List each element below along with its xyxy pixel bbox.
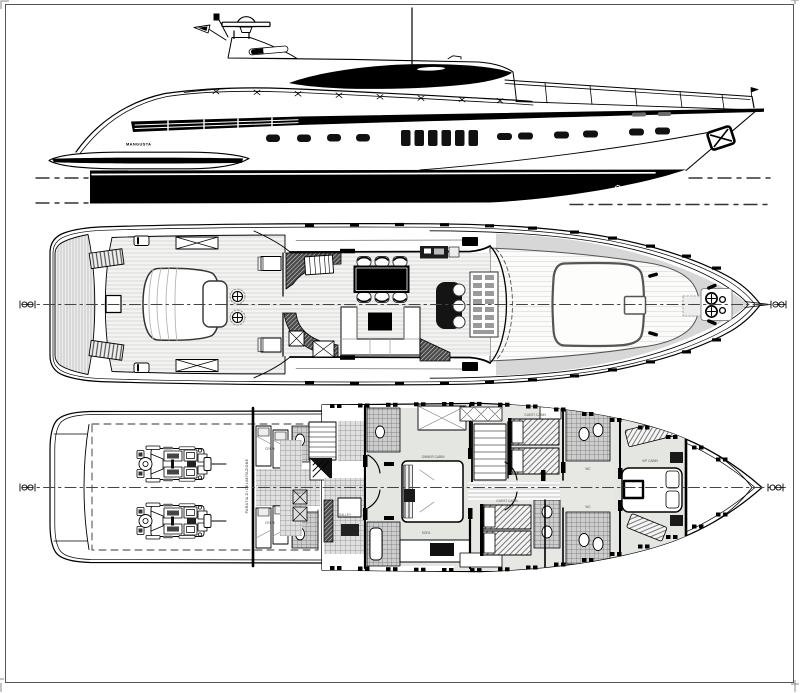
- svg-text:VIP CABIN: VIP CABIN: [642, 459, 658, 463]
- svg-text:GALLEY: GALLEY: [339, 513, 352, 517]
- svg-text:OWNER CABIN: OWNER CABIN: [422, 455, 446, 459]
- svg-text:GUEST CABIN: GUEST CABIN: [524, 413, 546, 417]
- svg-text:WC: WC: [585, 467, 591, 471]
- svg-text:SOFA: SOFA: [422, 531, 431, 535]
- svg-text:MANGUSTA: MANGUSTA: [126, 142, 151, 147]
- svg-text:CREW: CREW: [265, 447, 275, 451]
- svg-text:CREW: CREW: [265, 521, 275, 525]
- svg-text:WC: WC: [585, 505, 591, 509]
- svg-text:GUEST CABIN: GUEST CABIN: [496, 499, 518, 503]
- svg-text:PARATIA DI DELIMITAZIONE: PARATIA DI DELIMITAZIONE: [245, 458, 249, 513]
- svg-text:TOILETTE: TOILETTE: [292, 491, 307, 495]
